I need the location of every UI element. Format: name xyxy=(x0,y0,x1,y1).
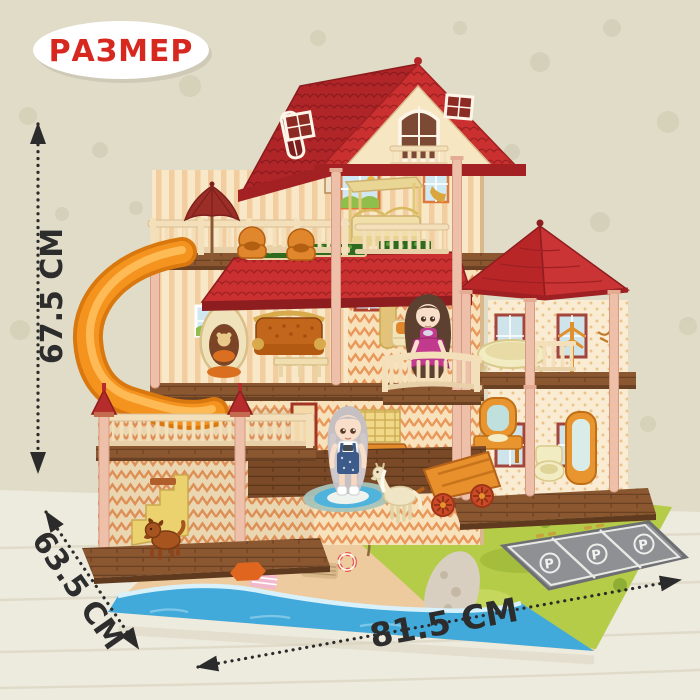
doll-standing xyxy=(328,406,368,495)
size-badge: РАЗМЕР xyxy=(33,21,212,83)
height-label: 67.5 СМ xyxy=(35,228,70,364)
toilet xyxy=(534,446,564,481)
standing-mirror xyxy=(566,412,596,484)
doll-balcony-railing xyxy=(382,355,482,405)
cart-wheel xyxy=(471,485,493,507)
skylight-right xyxy=(445,95,473,119)
stair-rug xyxy=(150,478,176,485)
product-photo-dollhouse: P P P xyxy=(0,0,700,700)
attic-balcony xyxy=(355,224,449,254)
sofa xyxy=(252,313,326,355)
terrace-chair-1 xyxy=(238,227,266,258)
pillar xyxy=(330,168,343,385)
pillar xyxy=(149,266,162,388)
skylight-left xyxy=(284,112,314,140)
pavilion-balustrade xyxy=(530,341,576,371)
pavilion-pillar xyxy=(608,290,621,492)
cart-wheel xyxy=(432,494,454,516)
gable-mini-balustrade xyxy=(390,146,448,166)
coffee-table xyxy=(274,358,328,377)
pavilion-pillar xyxy=(524,298,537,496)
terrace-chair-2 xyxy=(287,229,315,260)
size-badge-label: РАЗМЕР xyxy=(49,34,194,69)
